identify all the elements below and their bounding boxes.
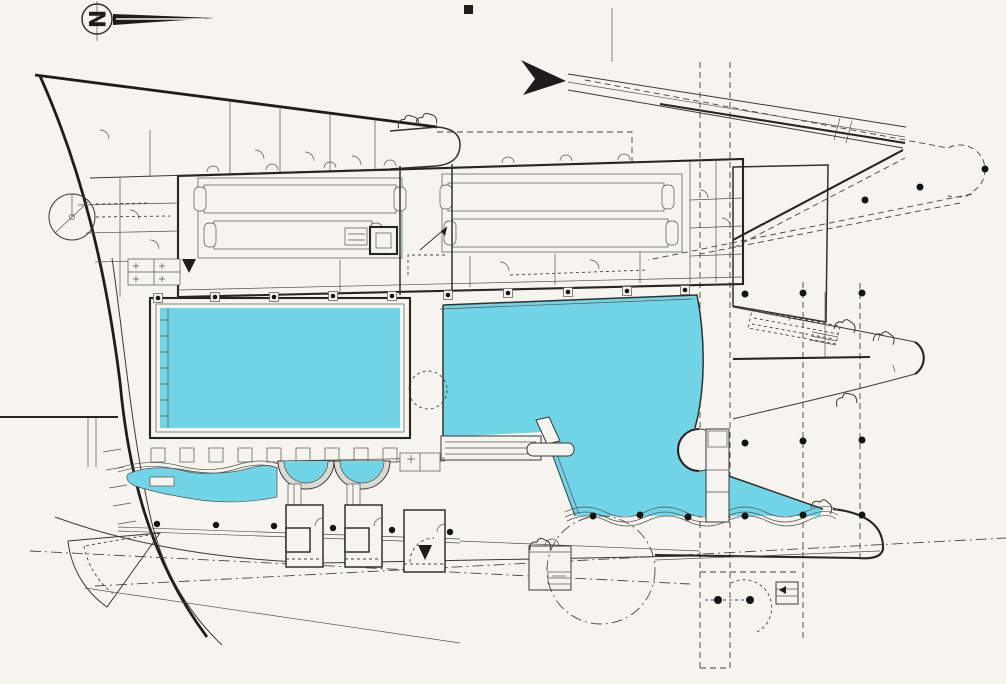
north-letter: N [83,10,108,28]
pool-main-water [160,308,400,428]
planter-row [151,448,397,462]
pier [706,429,729,522]
site-plan-sheet: N [0,0,1006,684]
pavilion-3 [404,510,445,572]
se-stair [776,582,798,604]
site-plan-drawing: N [0,0,1006,684]
deck-bench [400,453,440,471]
start-lanes [441,436,541,460]
kids-pool-pier [150,477,174,486]
survey-mark [464,5,473,14]
pool-main [150,298,410,438]
